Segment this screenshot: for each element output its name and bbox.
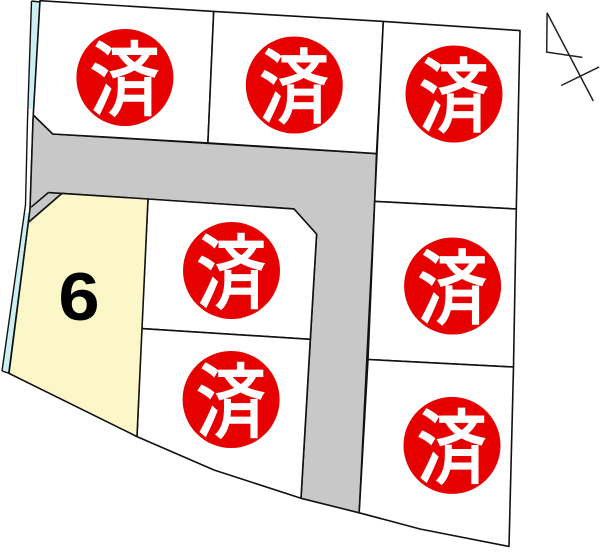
svg-text:6: 6 bbox=[58, 260, 99, 335]
